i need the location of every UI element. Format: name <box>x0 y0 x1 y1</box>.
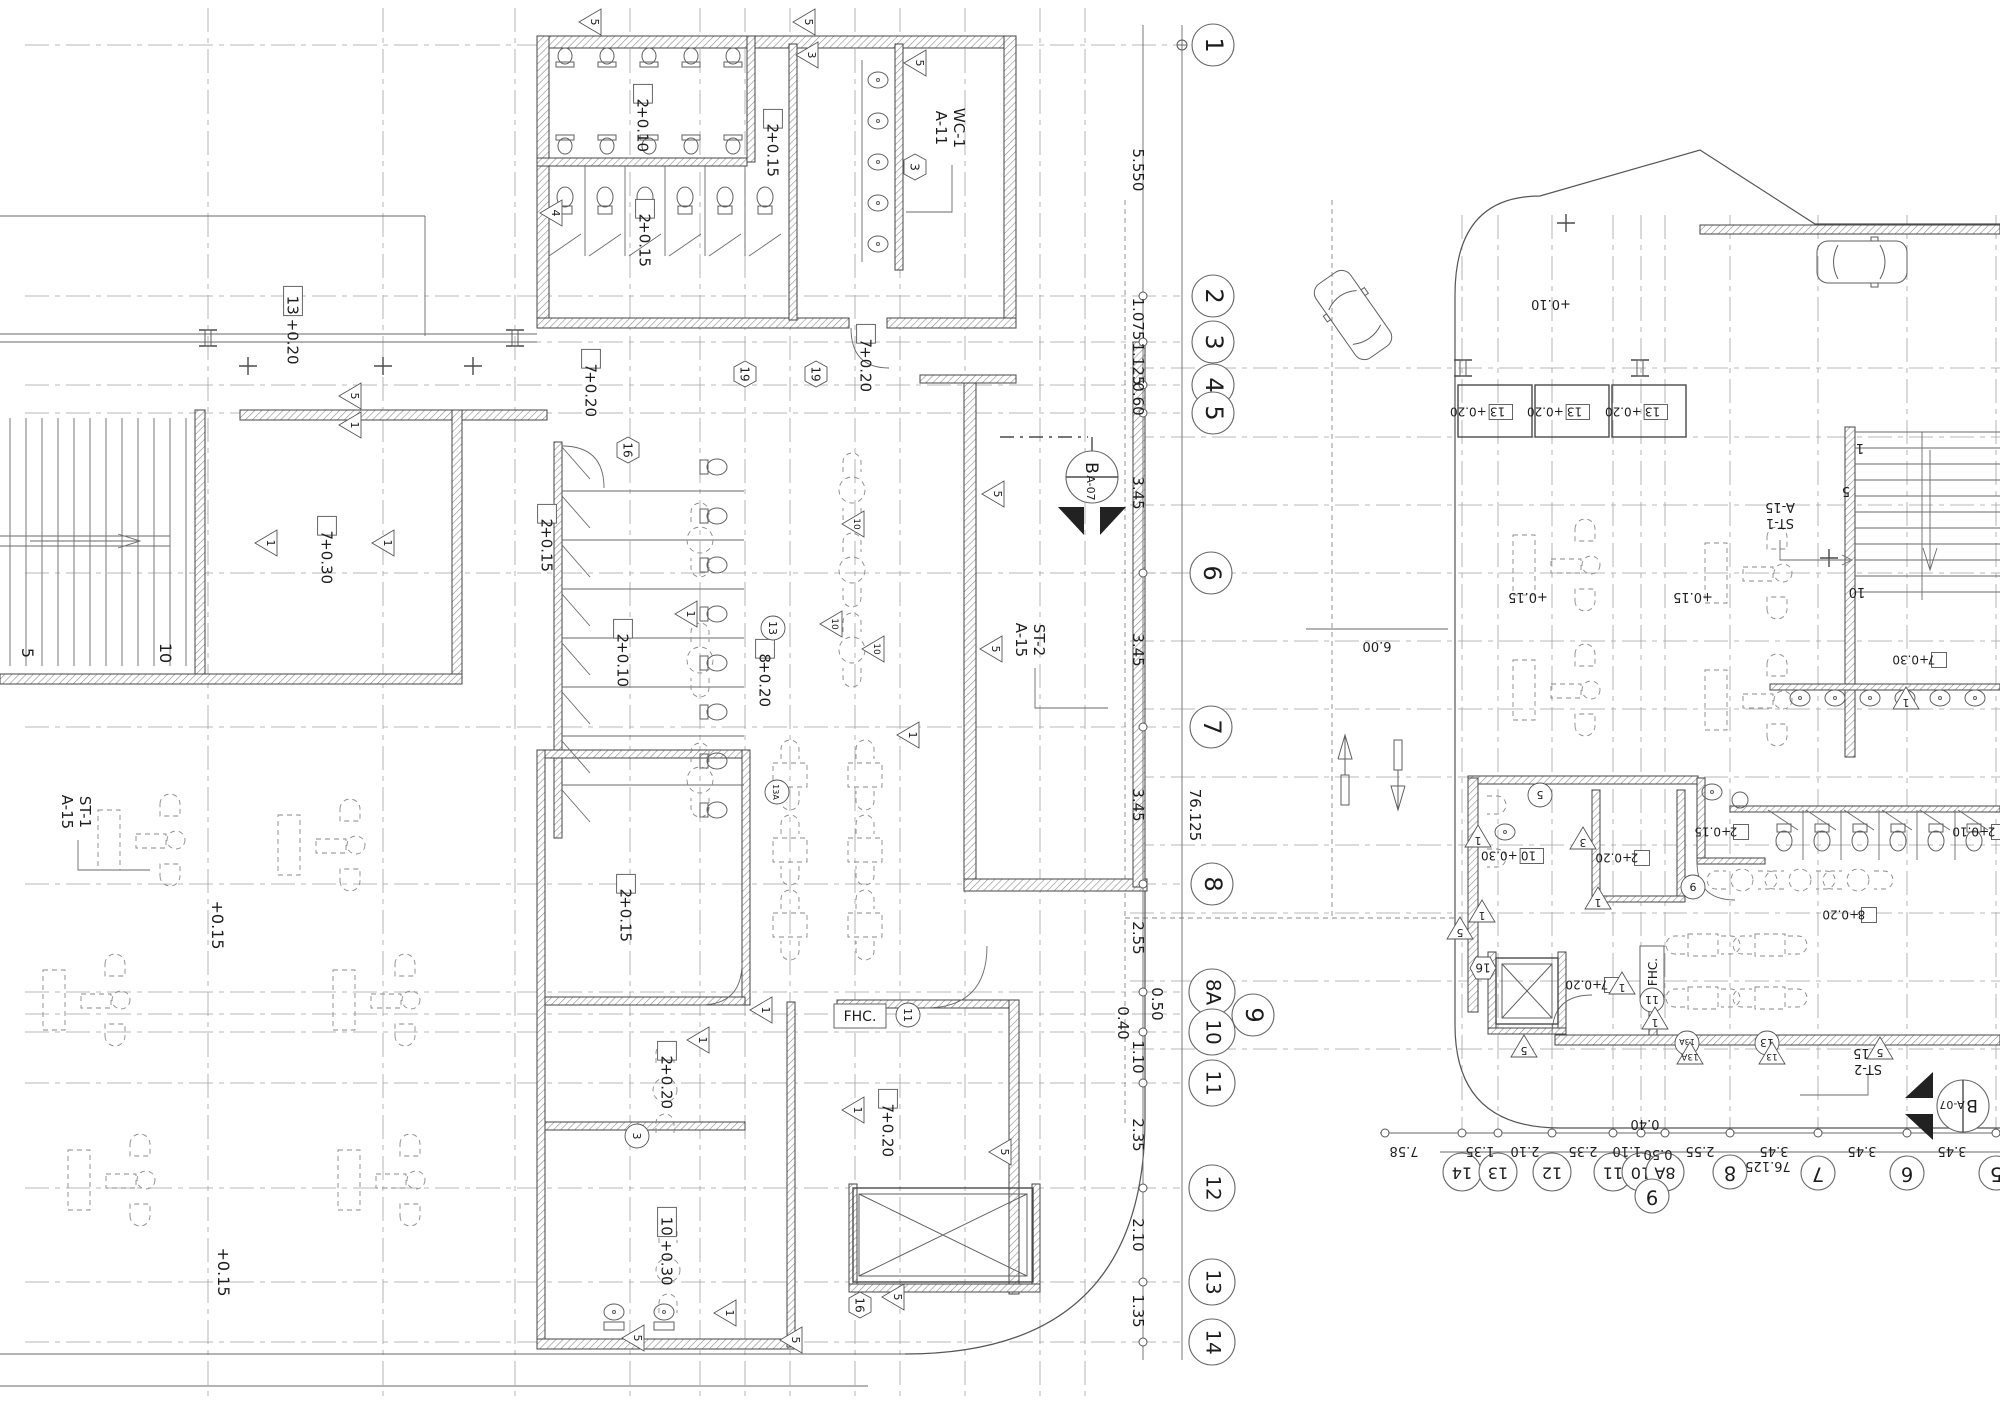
grid-bubble-label: 14 <box>1452 1164 1473 1183</box>
grid-bubble-label: 12 <box>1202 1175 1226 1200</box>
toilet-icon <box>700 508 727 524</box>
stall-door <box>549 234 581 256</box>
level-label: 10 <box>156 643 175 663</box>
grid-bubble-6: 6 <box>1890 1156 1924 1190</box>
detail-tag: 5 <box>579 9 601 35</box>
grid-bubble-7: 7 <box>1190 706 1232 748</box>
detail-tag-number: 5 <box>913 60 926 67</box>
dimension-text: 0.60 <box>1129 382 1147 415</box>
dimension-text: 1.35 <box>1466 1143 1495 1158</box>
grid-bubble-5: 5 <box>1979 1156 2000 1190</box>
elevation-label: 13+0.20 <box>283 286 302 364</box>
stall-door <box>562 594 590 626</box>
dim-tick <box>1903 1129 1911 1137</box>
dim-tick <box>1139 1278 1147 1286</box>
grid-bubble-label: 8 <box>1199 876 1227 891</box>
direction-arrow <box>1338 735 1352 805</box>
detail-tag-number: 1 <box>348 422 361 429</box>
level-label: +0.15 <box>1508 589 1548 604</box>
grid-bubble-label: 13 <box>1202 1269 1226 1294</box>
dimension-text: 0.50 <box>1148 987 1166 1020</box>
sink-icon <box>1860 690 1880 706</box>
reference-label: ST-1A-15 <box>1765 499 1795 530</box>
detail-tag: 10 <box>862 636 884 662</box>
grid-bubble-label: 5 <box>1990 1163 2000 1186</box>
sink-icon <box>1965 690 1985 706</box>
grid-cross-mark <box>1557 214 1575 232</box>
square-table-icon <box>848 913 882 937</box>
dimension-text: 2.10 <box>1129 1218 1147 1251</box>
stall-door <box>562 790 590 822</box>
toilet-icon <box>597 187 613 214</box>
level-label: 1 <box>1856 440 1864 455</box>
detail-tag-number: 1 <box>851 1107 864 1114</box>
grid-bubble-label: 9 <box>1646 1186 1658 1209</box>
stall-door <box>1920 810 1950 830</box>
overall-dimension: 76.125 <box>1186 789 1204 842</box>
chair-icon <box>843 613 861 632</box>
elevation-value: +0.10 <box>1952 824 1989 838</box>
grid-bubble-7: 7 <box>1801 1156 1835 1190</box>
grid-bubble-label: 7 <box>1198 719 1226 734</box>
dim-tick <box>1726 1129 1734 1137</box>
dimension-text: 1.10 <box>1129 1040 1147 1073</box>
wall <box>452 410 462 682</box>
elevator-icon <box>853 1188 1033 1282</box>
grid-bubble-label: 13 <box>1488 1164 1509 1183</box>
stair-direction-arrow <box>1923 450 1937 570</box>
toilet-icon <box>1852 824 1868 851</box>
sink-icon <box>1790 690 1810 706</box>
dim-tick <box>1381 1129 1389 1137</box>
grid-bubble-label: 8A <box>1202 979 1226 1006</box>
elevation-label: 7+0.30 <box>1892 652 1946 667</box>
wall <box>0 674 462 684</box>
grid-bubble-label: 11 <box>1603 1164 1624 1183</box>
section-sheet: A-07 <box>1084 475 1097 500</box>
wall <box>554 442 562 838</box>
dim-tick <box>1992 1129 2000 1137</box>
elevation-label: 2+0.10 <box>1952 824 2000 839</box>
sink-icon <box>868 72 888 88</box>
dimension-text: 3.45 <box>1129 633 1147 666</box>
elevation-value: +0.20 <box>1595 850 1632 864</box>
grid-bubble-label: 12 <box>1542 1164 1563 1183</box>
sofa-group-icon <box>1705 654 1792 746</box>
detail-tag: 5 <box>980 636 1002 662</box>
urinal-icon <box>598 135 616 154</box>
grid-bubble-label: 6 <box>1901 1163 1913 1186</box>
elevation-value: +0.20 <box>856 346 874 392</box>
wall <box>1700 225 2000 234</box>
wall <box>537 36 549 328</box>
elevation-label: 7+0.20 <box>581 349 600 417</box>
sink-icon <box>1825 690 1845 706</box>
elevation-value: +0.20 <box>755 661 773 707</box>
item-tag-number: 13 <box>766 621 779 635</box>
ref-line2: A-15 <box>1765 499 1795 514</box>
dimension-text: 3.45 <box>1938 1143 1967 1158</box>
level-label: +0.15 <box>1673 589 1713 604</box>
dimension-text: 0.40 <box>1631 1116 1660 1131</box>
chair-icon <box>1666 989 1685 1007</box>
detail-tag-number: 1 <box>906 732 919 739</box>
door-tag: 3 <box>904 154 926 180</box>
toilet-icon <box>757 187 773 214</box>
grid-cross-mark <box>464 357 482 375</box>
detail-tag-number: 1 <box>1479 909 1486 922</box>
dimension-text: 2.55 <box>1129 921 1147 954</box>
grid-bubble-11: 11 <box>1189 1060 1235 1106</box>
wall <box>1770 684 2000 690</box>
wall <box>964 879 1147 891</box>
grid-bubble-5: 5 <box>1192 392 1234 434</box>
car-icon <box>1307 264 1400 366</box>
chair-icon <box>856 791 874 810</box>
detail-tag-number: 5 <box>998 1149 1011 1156</box>
chair-icon <box>1733 936 1752 954</box>
detail-tag: 1 <box>714 1300 736 1326</box>
detail-tag: 5 <box>904 50 926 76</box>
door-tag-number: 19 <box>738 366 752 381</box>
fhc-text: FHC. <box>844 1009 877 1025</box>
elevation-label: 7+0.20 <box>878 1089 897 1157</box>
grid-bubble-label: 7 <box>1812 1163 1824 1186</box>
item-tag: 11 <box>896 1003 920 1027</box>
chair-icon <box>856 740 874 759</box>
toilet-icon <box>700 459 727 475</box>
wall <box>537 36 1016 48</box>
detail-tag-number: 5 <box>588 19 601 26</box>
grid-bubble-8A: 8A <box>1189 969 1235 1015</box>
dimension-text: 3.45 <box>1760 1143 1789 1158</box>
round-table-icon <box>839 477 865 503</box>
detail-tag-number: 3 <box>1580 836 1587 849</box>
floor-plan-sheet: 123456788A910111213145.5501.0751.1250.60… <box>0 0 2000 1413</box>
grid-bubble-label: 5 <box>1200 405 1228 420</box>
detail-tag-number: 5 <box>989 646 1002 653</box>
elevation-value: +0.20 <box>1450 404 1487 418</box>
sink-icon <box>868 154 888 170</box>
detail-tag: 10 <box>842 511 864 537</box>
ref-line2: A-15 <box>58 795 76 829</box>
wall <box>742 750 750 1005</box>
detail-tag: 1 <box>687 1027 709 1053</box>
wall <box>789 44 797 320</box>
detail-tag: 1 <box>675 601 697 627</box>
level-label: 10 <box>1849 584 1866 599</box>
grid-bubble-label: 14 <box>1202 1329 1226 1354</box>
leader-line <box>1800 1075 1868 1095</box>
detail-tag: 1 <box>842 1097 864 1123</box>
stall-door <box>709 234 741 256</box>
grid-bubble-label: 6 <box>1198 565 1226 580</box>
direction-arrow <box>1391 740 1405 810</box>
dimension-text: 1.10 <box>1613 1143 1642 1158</box>
door-tag-number: 16 <box>1475 961 1490 975</box>
grid-bubble-13: 13 <box>1189 1259 1235 1305</box>
urinal-icon <box>556 135 574 154</box>
section-arrow <box>1905 1072 1933 1098</box>
elevation-value: +0.15 <box>537 526 555 572</box>
wall <box>537 750 545 1347</box>
item-tag: 9 <box>1681 875 1705 899</box>
elevation-box-number: 13 <box>283 296 301 315</box>
wall <box>537 1339 794 1349</box>
chair-icon <box>843 533 861 552</box>
detail-tag: 5 <box>793 9 815 35</box>
section-letter: B <box>1966 1095 1978 1115</box>
grid-bubble-label: 10 <box>1202 1019 1226 1044</box>
item-tag: 13 <box>761 616 785 640</box>
elevation-label: 7+0.20 <box>856 324 875 392</box>
detail-tag-number: 1 <box>1903 696 1910 709</box>
wall <box>1004 36 1016 328</box>
elevation-box-number: 13 <box>1645 404 1660 418</box>
item-tag-number: 13A <box>771 784 780 800</box>
chair-icon <box>659 1294 677 1313</box>
detail-tag-number: 10 <box>829 618 839 630</box>
level-label: 5 <box>1842 483 1850 498</box>
chair-icon <box>843 668 861 687</box>
toilet-icon <box>700 557 727 573</box>
elevation-value: +0.20 <box>1527 404 1564 418</box>
elevation-value: +0.20 <box>1565 977 1602 991</box>
dim-tick <box>1139 988 1147 996</box>
door-tag: 19 <box>805 361 827 387</box>
elevation-label: 2+0.15 <box>537 504 556 572</box>
elevation-value: +0.20 <box>657 1063 675 1109</box>
grid-bubble-1: 1 <box>1192 24 1234 66</box>
dim-tick <box>1139 1338 1147 1346</box>
elevation-value: +0.15 <box>635 221 653 267</box>
section-marker: BA-07 <box>1905 1072 1989 1140</box>
dim-tick <box>1139 569 1147 577</box>
wall <box>787 1002 795 1347</box>
fhc-label: FHC. <box>834 1004 886 1028</box>
dimension-text: 5.550 <box>1129 149 1147 192</box>
door-tag-number: 3 <box>908 163 922 171</box>
chair-icon <box>1788 989 1807 1007</box>
dim-tick <box>1661 1129 1669 1137</box>
grid-bubble-6: 6 <box>1190 552 1232 594</box>
detail-tag-number: 4 <box>549 210 562 217</box>
chair-icon <box>1707 871 1726 889</box>
elevation-value: +0.15 <box>1694 824 1731 838</box>
grid-bubble-label: 8 <box>1724 1162 1736 1185</box>
level-label: 5 <box>18 648 37 658</box>
detail-tag: 5 <box>1511 1035 1537 1057</box>
elevation-label: 2+0.10 <box>613 619 632 687</box>
elevation-label: 2+0.15 <box>1694 824 1748 839</box>
grid-bubble-label: 4 <box>1200 377 1228 392</box>
detail-tag-number: 5 <box>802 19 815 26</box>
detail-tag-number: 1 <box>759 1007 772 1014</box>
ref-line1: ST-1 <box>76 796 94 828</box>
toilet-icon <box>700 655 727 671</box>
dimension-text: 1.125 <box>1129 343 1147 386</box>
toilet-icon <box>700 606 727 622</box>
toilet-icon <box>1776 824 1792 851</box>
dimension-text: 3.45 <box>1129 788 1147 821</box>
wall <box>537 318 849 328</box>
section-sheet: A-07 <box>1939 1098 1964 1111</box>
sink-icon <box>868 113 888 129</box>
dim-tick <box>1814 1129 1822 1137</box>
urinal-icon <box>556 48 574 67</box>
urinal-icon <box>598 48 616 67</box>
wall <box>849 1284 1040 1292</box>
floor-plan-drawing: 123456788A910111213145.5501.0751.1250.60… <box>0 0 2000 1413</box>
detail-tag-number: 5 <box>1521 1044 1528 1057</box>
leader-line <box>78 840 150 870</box>
detail-tag-number: 1 <box>723 1310 736 1317</box>
chair-icon <box>1788 936 1807 954</box>
square-table-icon <box>848 838 882 862</box>
elevation-box-number: 10 <box>1521 848 1536 862</box>
stall-door <box>669 234 701 256</box>
detail-tag-number: 5 <box>789 1337 802 1344</box>
ref-line1: ST-1 <box>1766 515 1794 530</box>
sink-icon <box>654 1304 674 1320</box>
square-table-icon <box>1688 987 1718 1009</box>
stall-door <box>589 234 621 256</box>
wall <box>1558 952 1566 1034</box>
elevation-label: 2+0.15 <box>763 109 782 177</box>
detail-tag-number: 10 <box>851 518 861 530</box>
dim-tick <box>1139 1028 1147 1036</box>
level-label: +0.15 <box>214 1247 233 1296</box>
toilet-icon <box>677 187 693 214</box>
toilet-icon <box>1890 824 1906 851</box>
car-icon <box>1817 237 1907 287</box>
chair-icon <box>856 815 874 834</box>
chair-icon <box>843 588 861 607</box>
grid-bubble-9: 9 <box>1635 1179 1669 1213</box>
detail-tag-number: 1 <box>1595 896 1602 909</box>
elevation-value: +0.30 <box>317 538 335 584</box>
dim-tick <box>1609 1129 1617 1137</box>
detail-tag-number: 5 <box>1457 926 1464 939</box>
dimension-text: 7.58 <box>1390 1143 1419 1158</box>
detail-tag-number: 3 <box>805 52 818 59</box>
level-label: 6.00 <box>1363 638 1392 653</box>
dimension-text: 0.50 <box>1644 1146 1673 1161</box>
elevation-label: 10+0.30 <box>657 1207 676 1285</box>
toilet-icon <box>700 704 727 720</box>
round-table-icon <box>1847 869 1869 891</box>
elevation-label: 2+0.20 <box>1595 850 1649 865</box>
grid-bubble-label: 9 <box>1240 1007 1268 1022</box>
sink-pedestal <box>654 1322 674 1330</box>
dim-tick <box>1494 1129 1502 1137</box>
chair-icon <box>856 890 874 909</box>
chair-icon <box>856 866 874 885</box>
grid-bubble-label: 2 <box>1200 288 1228 303</box>
detail-tag-number: 5 <box>891 1294 904 1301</box>
dimension-text: 2.35 <box>1129 1118 1147 1151</box>
ref-line2: A-15 <box>1012 623 1030 657</box>
urinal-icon <box>682 48 700 67</box>
door-swing <box>925 946 987 1008</box>
sink-icon <box>868 236 888 252</box>
grid-bubble-10: 10 <box>1189 1009 1235 1055</box>
chair-icon <box>1487 796 1506 814</box>
elevation-label: 2+0.20 <box>657 1041 676 1109</box>
elevation-value: +0.30 <box>1481 848 1518 862</box>
item-tag-number: 3 <box>630 1133 643 1140</box>
stall-door <box>1806 810 1836 830</box>
detail-tag-number: 5 <box>348 393 361 400</box>
square-table-icon <box>848 763 882 787</box>
dimension-text: 2.55 <box>1686 1143 1715 1158</box>
detail-tag-number: 5 <box>631 1335 644 1342</box>
door-tag-number: 16 <box>621 442 635 457</box>
detail-tag: 1 <box>750 997 772 1023</box>
elevation-value: +0.30 <box>657 1240 675 1286</box>
grid-bubble-8: 8 <box>1191 863 1233 905</box>
overall-dimension: 76.125 <box>1745 1158 1791 1173</box>
stall-door <box>562 643 590 675</box>
wall <box>747 36 755 162</box>
detail-tag-number: 1 <box>1475 834 1482 847</box>
reference-label: WC-1A-11 <box>932 108 968 148</box>
stall-door <box>562 545 590 577</box>
stall-door <box>562 447 590 479</box>
item-tag: 3 <box>625 1124 649 1148</box>
wall <box>964 382 976 887</box>
sofa-group-icon <box>98 794 185 886</box>
elevator-icon <box>1496 958 1558 1024</box>
square-table-icon <box>1688 934 1718 956</box>
fhc-text: FHC. <box>1646 958 1660 986</box>
wall <box>1468 776 1698 784</box>
sofa-group-icon <box>1513 644 1600 736</box>
item-tag: 13A <box>765 780 789 804</box>
grid-cross-mark <box>1820 549 1838 567</box>
elevation-label: 7+0.30 <box>317 516 336 584</box>
stall-door <box>1844 810 1874 830</box>
chair-icon <box>1721 936 1740 954</box>
door-tag: 19 <box>734 361 756 387</box>
stall-door <box>562 496 590 528</box>
detail-tag: 5 <box>339 383 361 409</box>
section-marker: BA-07 <box>1058 451 1126 535</box>
dimension-text: 1.075 <box>1129 298 1147 341</box>
ref-line1: WC-1 <box>950 108 968 148</box>
dimension-text: 2.10 <box>1511 1143 1540 1158</box>
detail-tag-number: 1 <box>696 1037 709 1044</box>
elevation-label: 2+0.15 <box>635 199 654 267</box>
door-tag-number: 19 <box>809 366 823 381</box>
urinal-icon <box>640 48 658 67</box>
wall <box>537 158 747 166</box>
leader-line <box>1780 540 1852 565</box>
site-boundary <box>1455 150 2000 1025</box>
grid-bubble-label: 1 <box>1200 37 1228 52</box>
elevation-label: 8+0.20 <box>755 639 774 707</box>
door-tag: 16 <box>849 1292 871 1318</box>
detail-tag-number: 13A <box>1680 1051 1698 1061</box>
toilet-icon <box>1928 824 1944 851</box>
detail-tag-number: 13 <box>1766 1051 1777 1061</box>
round-table-icon <box>1789 869 1811 891</box>
sofa-group-icon <box>278 799 365 891</box>
chair-icon <box>1874 871 1893 889</box>
item-tag-number: 13A <box>1679 1037 1695 1046</box>
elevation-value: +0.30 <box>1892 652 1929 666</box>
wall <box>895 44 903 270</box>
